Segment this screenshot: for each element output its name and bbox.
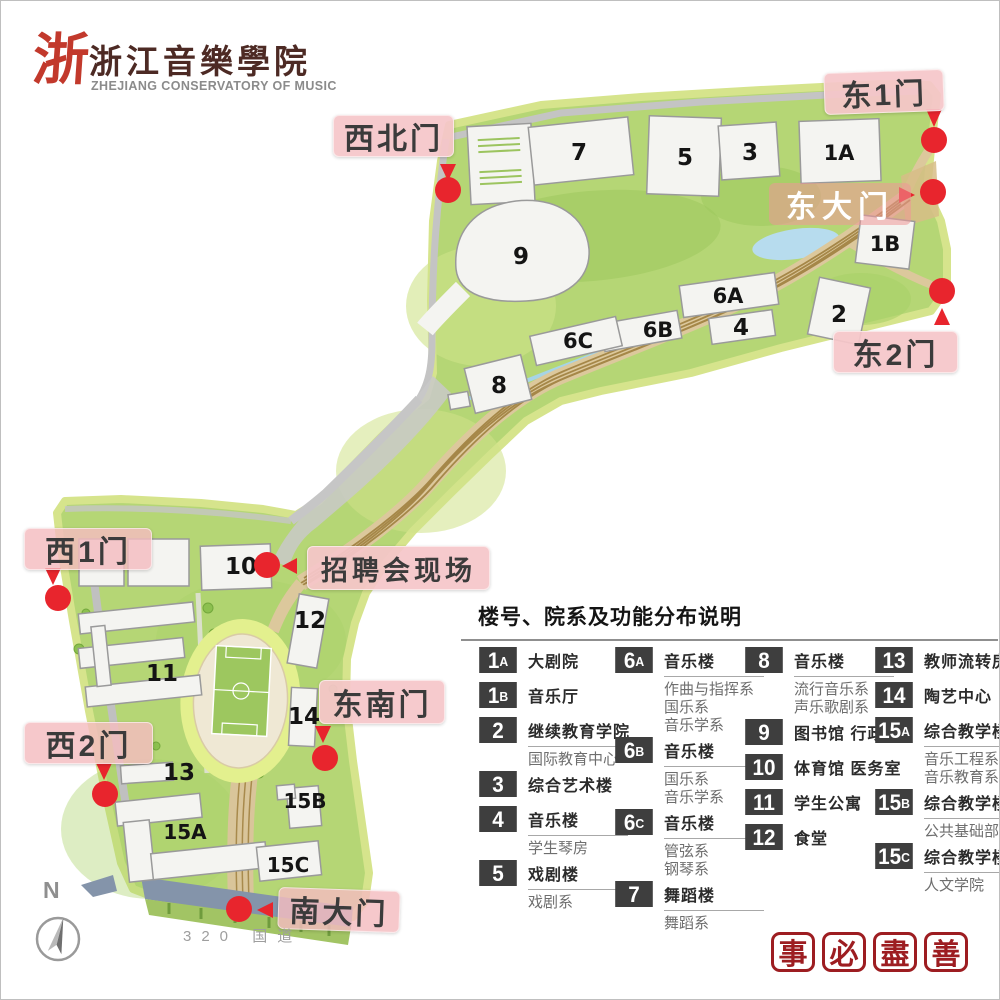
legend-columns: 1A大剧院1B音乐厅2继续教育学院国际教育中心3综合艺术楼4音乐楼学生琴房5戏剧… bbox=[461, 647, 998, 935]
legend-badge: 11 bbox=[745, 789, 783, 815]
legend-entry-1A: 1A大剧院 bbox=[478, 647, 614, 673]
legend-department: 音乐工程系 bbox=[924, 751, 1000, 769]
legend-badge: 13 bbox=[875, 647, 913, 673]
legend-entry-11: 11学生公寓 bbox=[744, 789, 874, 815]
legend-badge: 15B bbox=[875, 789, 913, 815]
building-number: 10 bbox=[225, 554, 257, 580]
legend-badge: 2 bbox=[479, 717, 517, 743]
legend-entry-15A: 15A综合教学楼音乐工程系音乐教育系 bbox=[874, 717, 1000, 787]
building-number: 6C bbox=[563, 329, 593, 353]
legend-entry-departments: 人文学院 bbox=[924, 872, 1000, 895]
legend-entry-title: 大剧院 bbox=[528, 648, 579, 672]
building-number: 6A bbox=[713, 284, 745, 308]
legend-entry-title: 音乐楼 bbox=[664, 648, 715, 672]
gate-label-east1: 东1门 bbox=[823, 69, 944, 115]
building-number: 9 bbox=[513, 244, 529, 270]
legend-entry-title: 食堂 bbox=[794, 825, 828, 849]
gate-label-northwest: 西北门 bbox=[333, 115, 454, 157]
seal-character-1: 事 bbox=[771, 932, 815, 972]
legend-column-4: 13教师流转房14陶艺中心15A综合教学楼音乐工程系音乐教育系15B综合教学楼公… bbox=[874, 647, 1000, 935]
building-number: 15C bbox=[267, 853, 310, 877]
building-number: 12 bbox=[294, 608, 326, 634]
legend-divider bbox=[461, 639, 998, 641]
legend-entry-4: 4音乐楼学生琴房 bbox=[478, 806, 614, 858]
legend-entry-15B: 15B综合教学楼公共基础部 bbox=[874, 789, 1000, 841]
gate-label-west2: 西2门 bbox=[24, 722, 153, 764]
job-fair-label: 招聘会现场 bbox=[307, 546, 490, 590]
legend-department: 国际教育中心 bbox=[528, 751, 628, 769]
compass: N bbox=[27, 877, 97, 969]
building-number: 3 bbox=[742, 140, 758, 166]
legend-badge: 4 bbox=[479, 806, 517, 832]
legend-entry-1B: 1B音乐厅 bbox=[478, 682, 614, 708]
legend-badge: 8 bbox=[745, 647, 783, 673]
gate-dot-east1 bbox=[921, 127, 947, 153]
building-number: 15A bbox=[163, 820, 207, 844]
legend-badge: 14 bbox=[875, 682, 913, 708]
legend-badge: 10 bbox=[745, 754, 783, 780]
campus-map-page: 7 5 3 1A 1B 2 9 6A 6B 6C 4 8 10 12 11 14… bbox=[0, 0, 1000, 1000]
legend-badge: 6B bbox=[615, 737, 653, 763]
building-number: 4 bbox=[733, 315, 749, 341]
national-road-label: 320 国道 bbox=[183, 925, 302, 946]
legend-department: 人文学院 bbox=[924, 877, 1000, 895]
legend-column-3: 8音乐楼流行音乐系声乐歌剧系9图书馆 行政楼10体育馆 医务室11学生公寓12食… bbox=[744, 647, 874, 935]
building-number: 15B bbox=[283, 789, 326, 813]
legend-badge: 6A bbox=[615, 647, 653, 673]
legend-entry-12: 12食堂 bbox=[744, 824, 874, 850]
gate-dot-south-main bbox=[226, 896, 252, 922]
job-fair-dot bbox=[254, 552, 280, 578]
legend-badge: 15C bbox=[875, 843, 913, 869]
legend-entry-departments: 公共基础部 bbox=[924, 818, 1000, 841]
gate-dot-east-main bbox=[920, 179, 946, 205]
building-number: 11 bbox=[146, 661, 178, 687]
legend-entry-10: 10体育馆 医务室 bbox=[744, 754, 874, 780]
logo: 浙 浙江音樂學院 ZHEJIANG CONSERVATORY OF MUSIC bbox=[31, 25, 361, 105]
seal-motto: 事必盡善 bbox=[771, 932, 968, 972]
legend-entry-title: 学生公寓 bbox=[794, 790, 862, 814]
legend-entry-title: 音乐楼 bbox=[528, 807, 579, 831]
building-number: 1A bbox=[824, 141, 856, 165]
building-number: 2 bbox=[831, 302, 847, 328]
legend-entry-title: 综合艺术楼 bbox=[528, 772, 613, 796]
legend-entry-title: 综合教学楼 bbox=[924, 718, 1000, 742]
building-number: 1B bbox=[870, 232, 901, 256]
legend-badge: 9 bbox=[745, 719, 783, 745]
seal-character-3: 盡 bbox=[873, 932, 917, 972]
legend-entry-title: 综合教学楼 bbox=[924, 790, 1000, 814]
legend-entry-title: 音乐楼 bbox=[664, 738, 715, 762]
legend-entry-5: 5戏剧楼戏剧系 bbox=[478, 860, 614, 912]
legend-entry-7: 7舞蹈楼舞蹈系 bbox=[614, 881, 744, 933]
gate-label-southeast: 东南门 bbox=[319, 680, 445, 724]
legend-badge: 15A bbox=[875, 717, 913, 743]
legend-entry-departments: 学生琴房 bbox=[528, 835, 628, 858]
gate-label-east-main: 东大门 bbox=[769, 183, 911, 225]
legend-entry-title: 教师流转房 bbox=[924, 648, 1000, 672]
legend-department: 戏剧系 bbox=[528, 894, 628, 912]
legend-entry-title: 舞蹈楼 bbox=[664, 882, 715, 906]
building-number: 13 bbox=[163, 760, 195, 786]
building-number: 6B bbox=[643, 318, 674, 342]
legend-entry-6C: 6C音乐楼管弦系钢琴系 bbox=[614, 809, 744, 879]
legend-entry-departments: 戏剧系 bbox=[528, 889, 628, 912]
gate-label-west1: 西1门 bbox=[24, 528, 152, 570]
legend-entry-6B: 6B音乐楼国乐系音乐学系 bbox=[614, 737, 744, 807]
building-number: 8 bbox=[491, 373, 507, 399]
legend-entry-title: 音乐楼 bbox=[664, 810, 715, 834]
legend-entry-3: 3综合艺术楼 bbox=[478, 771, 614, 797]
building-number: 5 bbox=[677, 145, 693, 171]
legend-department: 公共基础部 bbox=[924, 823, 1000, 841]
legend-entry-2: 2继续教育学院国际教育中心 bbox=[478, 717, 614, 769]
legend-badge: 5 bbox=[479, 860, 517, 886]
legend-title: 楼号、院系及功能分布说明 bbox=[461, 601, 998, 631]
gate-dot-west2 bbox=[92, 781, 118, 807]
legend-badge: 12 bbox=[745, 824, 783, 850]
legend-department: 学生琴房 bbox=[528, 840, 628, 858]
gate-pointer-east2 bbox=[934, 308, 950, 325]
building-number: 7 bbox=[571, 140, 587, 166]
legend-column-1: 1A大剧院1B音乐厅2继续教育学院国际教育中心3综合艺术楼4音乐楼学生琴房5戏剧… bbox=[478, 647, 614, 935]
logo-seal-icon: 浙 bbox=[31, 31, 91, 89]
legend-entry-6A: 6A音乐楼作曲与指挥系国乐系音乐学系 bbox=[614, 647, 744, 735]
legend-entry-8: 8音乐楼流行音乐系声乐歌剧系 bbox=[744, 647, 874, 717]
legend-entry-9: 9图书馆 行政楼 bbox=[744, 719, 874, 745]
legend-department: 音乐教育系 bbox=[924, 769, 1000, 787]
legend-entry-title: 陶艺中心 bbox=[924, 683, 992, 707]
compass-north-label: N bbox=[43, 877, 61, 904]
gate-dot-southeast bbox=[312, 745, 338, 771]
legend-entry-departments: 音乐工程系音乐教育系 bbox=[924, 746, 1000, 787]
gate-dot-northwest bbox=[435, 177, 461, 203]
legend-entry-departments: 国际教育中心 bbox=[528, 746, 628, 769]
logo-title-english: ZHEJIANG CONSERVATORY OF MUSIC bbox=[91, 79, 337, 93]
gate-label-east2: 东2门 bbox=[833, 331, 958, 373]
gate-dot-east2 bbox=[929, 278, 955, 304]
seal-character-2: 必 bbox=[822, 932, 866, 972]
legend-column-2: 6A音乐楼作曲与指挥系国乐系音乐学系6B音乐楼国乐系音乐学系6C音乐楼管弦系钢琴… bbox=[614, 647, 744, 935]
legend: 楼号、院系及功能分布说明 1A大剧院1B音乐厅2继续教育学院国际教育中心3综合艺… bbox=[461, 601, 998, 935]
legend-entry-title: 音乐楼 bbox=[794, 648, 845, 672]
legend-badge: 1B bbox=[479, 682, 517, 708]
legend-badge: 1A bbox=[479, 647, 517, 673]
legend-entry-14: 14陶艺中心 bbox=[874, 682, 1000, 708]
legend-badge: 6C bbox=[615, 809, 653, 835]
legend-entry-13: 13教师流转房 bbox=[874, 647, 1000, 673]
legend-entry-title: 综合教学楼 bbox=[924, 844, 1000, 868]
seal-character-4: 善 bbox=[924, 932, 968, 972]
legend-entry-title: 戏剧楼 bbox=[528, 861, 579, 885]
legend-badge: 3 bbox=[479, 771, 517, 797]
legend-entry-15C: 15C综合教学楼人文学院 bbox=[874, 843, 1000, 895]
legend-entry-title: 音乐厅 bbox=[528, 683, 579, 707]
gate-dot-west1 bbox=[45, 585, 71, 611]
legend-badge: 7 bbox=[615, 881, 653, 907]
logo-title-chinese: 浙江音樂學院 bbox=[89, 35, 311, 83]
